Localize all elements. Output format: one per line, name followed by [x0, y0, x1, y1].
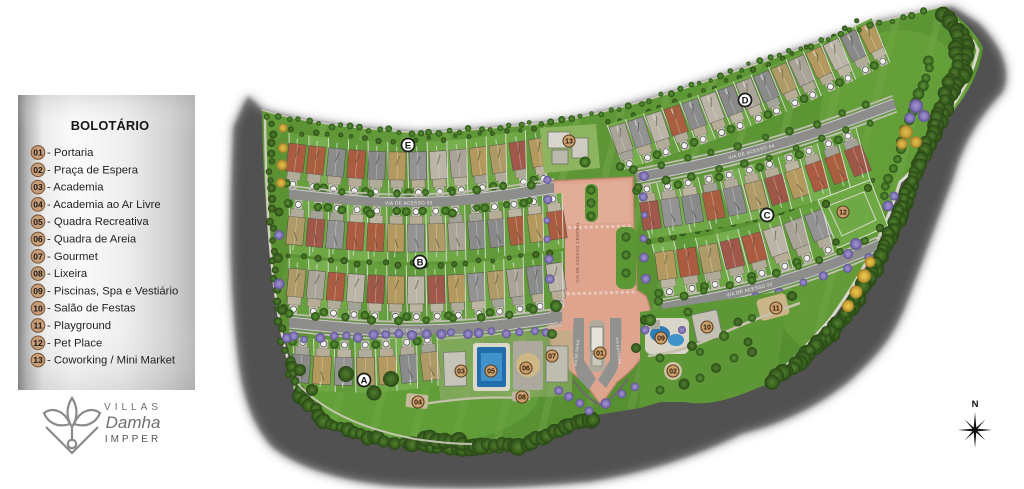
svg-text:04: 04	[33, 200, 43, 210]
svg-text:05: 05	[33, 217, 43, 227]
svg-text:B: B	[417, 257, 424, 268]
svg-text:C: C	[764, 210, 771, 221]
svg-text:- Quadra de Areia: - Quadra de Areia	[47, 234, 137, 246]
svg-text:- Portaria: - Portaria	[47, 147, 94, 159]
svg-text:08: 08	[33, 269, 43, 279]
svg-text:Damha: Damha	[106, 413, 161, 432]
svg-text:12: 12	[839, 210, 847, 217]
svg-text:03: 03	[33, 182, 43, 192]
svg-text:01: 01	[33, 148, 43, 158]
svg-text:A: A	[361, 375, 368, 386]
svg-text:- Pet Place: - Pet Place	[47, 337, 102, 349]
svg-text:09: 09	[33, 286, 43, 296]
svg-text:- Lixeira: - Lixeira	[47, 268, 88, 280]
svg-text:07: 07	[548, 354, 556, 361]
svg-text:- Playground: - Playground	[47, 320, 111, 332]
svg-text:E: E	[405, 140, 411, 151]
svg-text:13: 13	[33, 355, 43, 365]
svg-text:VILLAS: VILLAS	[104, 402, 162, 413]
svg-text:- Quadra Recreativa: - Quadra Recreativa	[47, 216, 149, 228]
svg-text:- Piscinas, Spa e Vestiário: - Piscinas, Spa e Vestiário	[47, 285, 178, 297]
svg-text:07: 07	[33, 251, 43, 261]
svg-text:- Academia ao Ar Livre: - Academia ao Ar Livre	[47, 199, 161, 211]
svg-text:02: 02	[669, 369, 677, 376]
svg-text:N: N	[972, 399, 979, 410]
svg-text:IMPPER: IMPPER	[105, 434, 161, 445]
svg-text:- Academia: - Academia	[47, 182, 104, 194]
svg-text:06: 06	[33, 234, 43, 244]
svg-text:10: 10	[33, 303, 43, 313]
svg-text:- Coworking / Mini Market: - Coworking / Mini Market	[47, 355, 176, 367]
svg-text:03: 03	[457, 369, 465, 376]
svg-text:01: 01	[596, 351, 604, 358]
svg-text:10: 10	[703, 325, 711, 332]
svg-text:09: 09	[657, 336, 665, 343]
svg-text:- Gourmet: - Gourmet	[47, 251, 99, 263]
svg-text:08: 08	[518, 395, 526, 402]
svg-text:11: 11	[33, 321, 42, 331]
svg-text:06: 06	[522, 366, 530, 373]
svg-text:13: 13	[565, 139, 573, 146]
svg-text:D: D	[742, 95, 749, 106]
svg-text:04: 04	[414, 400, 422, 407]
svg-text:05: 05	[487, 369, 495, 376]
svg-text:11: 11	[772, 306, 780, 313]
svg-text:- Salão de Festas: - Salão de Festas	[47, 303, 136, 315]
svg-text:02: 02	[33, 165, 43, 175]
svg-text:- Praça de Espera: - Praça de Espera	[47, 164, 139, 176]
svg-text:BOLOTÁRIO: BOLOTÁRIO	[71, 118, 150, 133]
svg-text:12: 12	[33, 338, 43, 348]
